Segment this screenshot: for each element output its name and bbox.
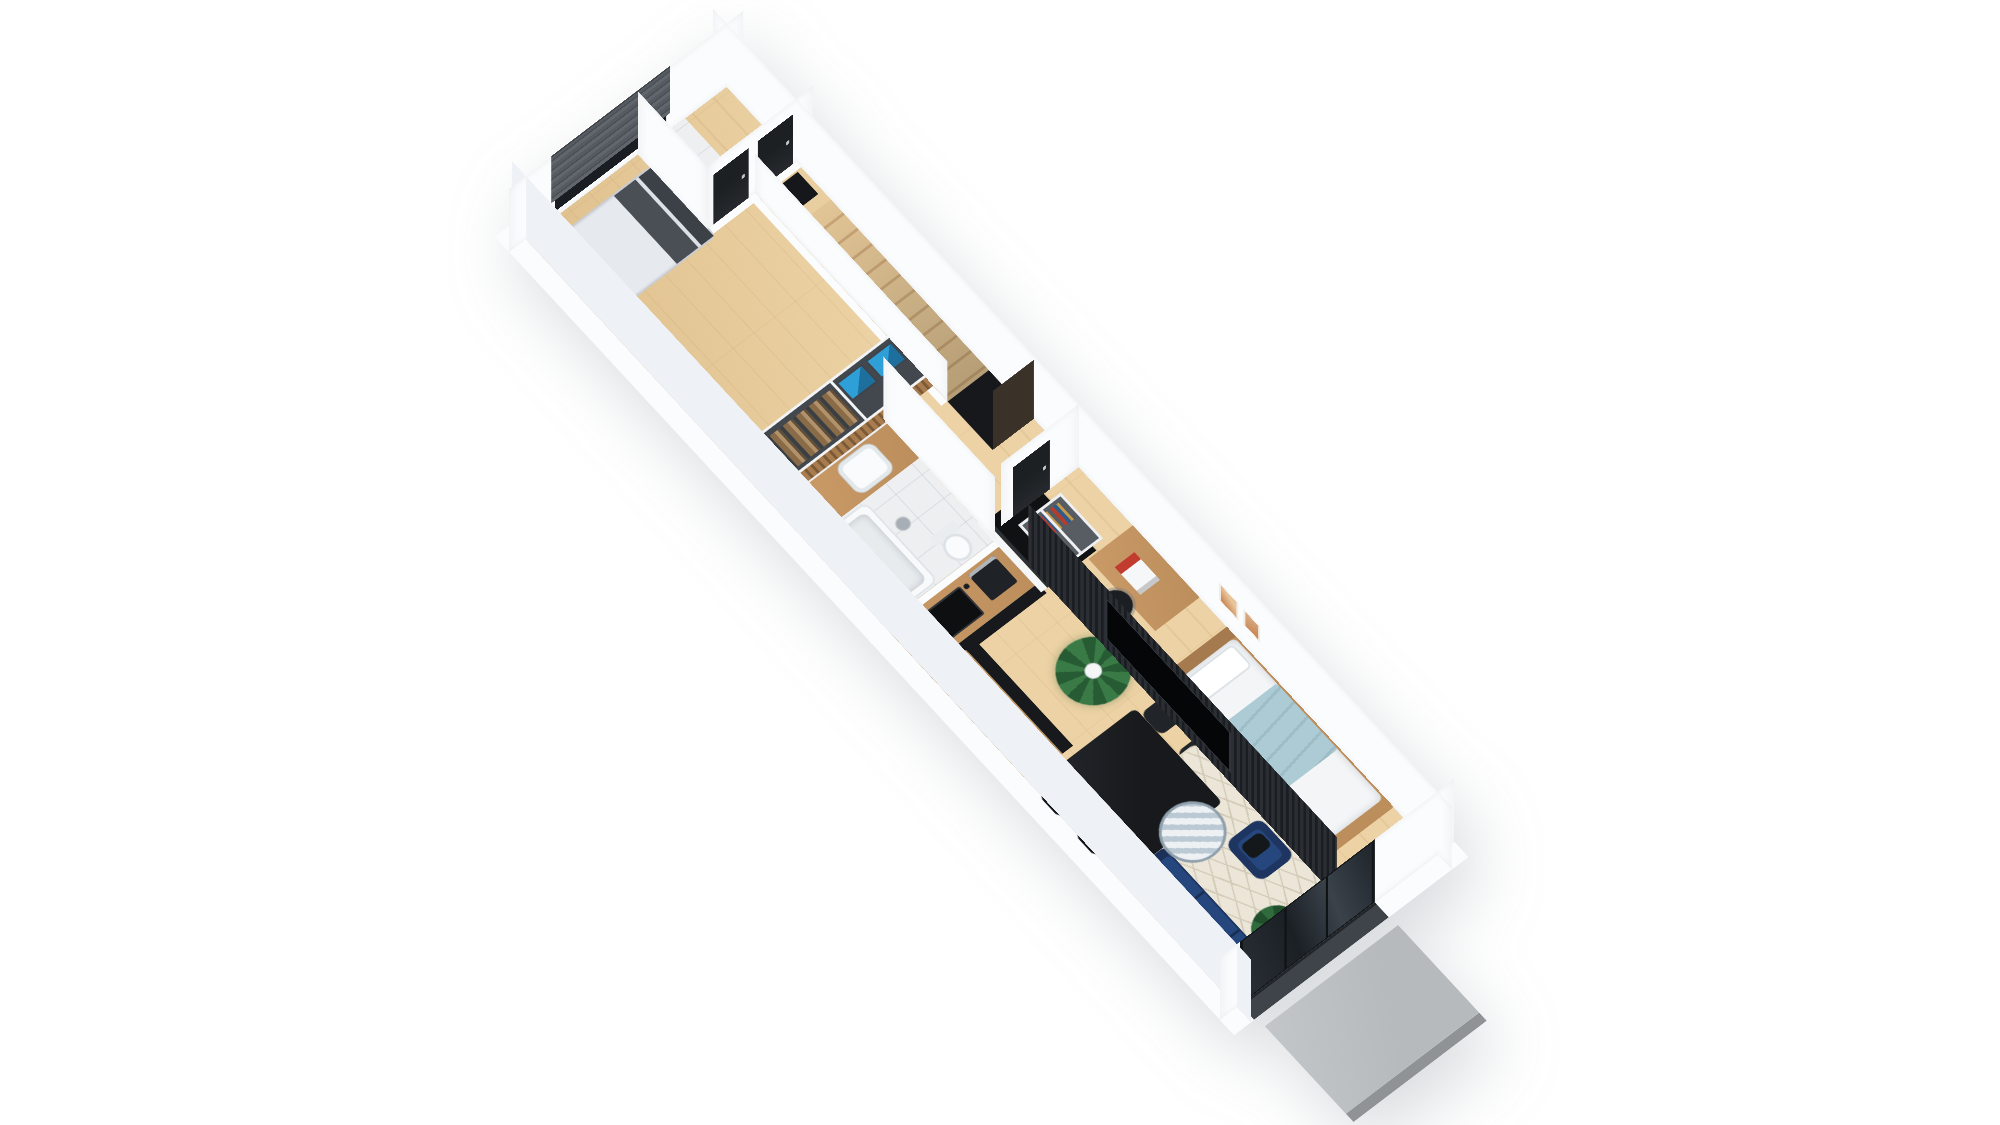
- door-handle: [742, 173, 745, 179]
- floorplan-render: [0, 0, 2000, 1125]
- door-handle: [786, 140, 789, 146]
- wall-art-1: [1219, 582, 1238, 621]
- render-shadow-wrapper: [0, 0, 2000, 1125]
- door-handle: [1043, 465, 1046, 471]
- wall-art-2: [1243, 609, 1260, 643]
- apartment-scene: [495, 59, 1469, 1036]
